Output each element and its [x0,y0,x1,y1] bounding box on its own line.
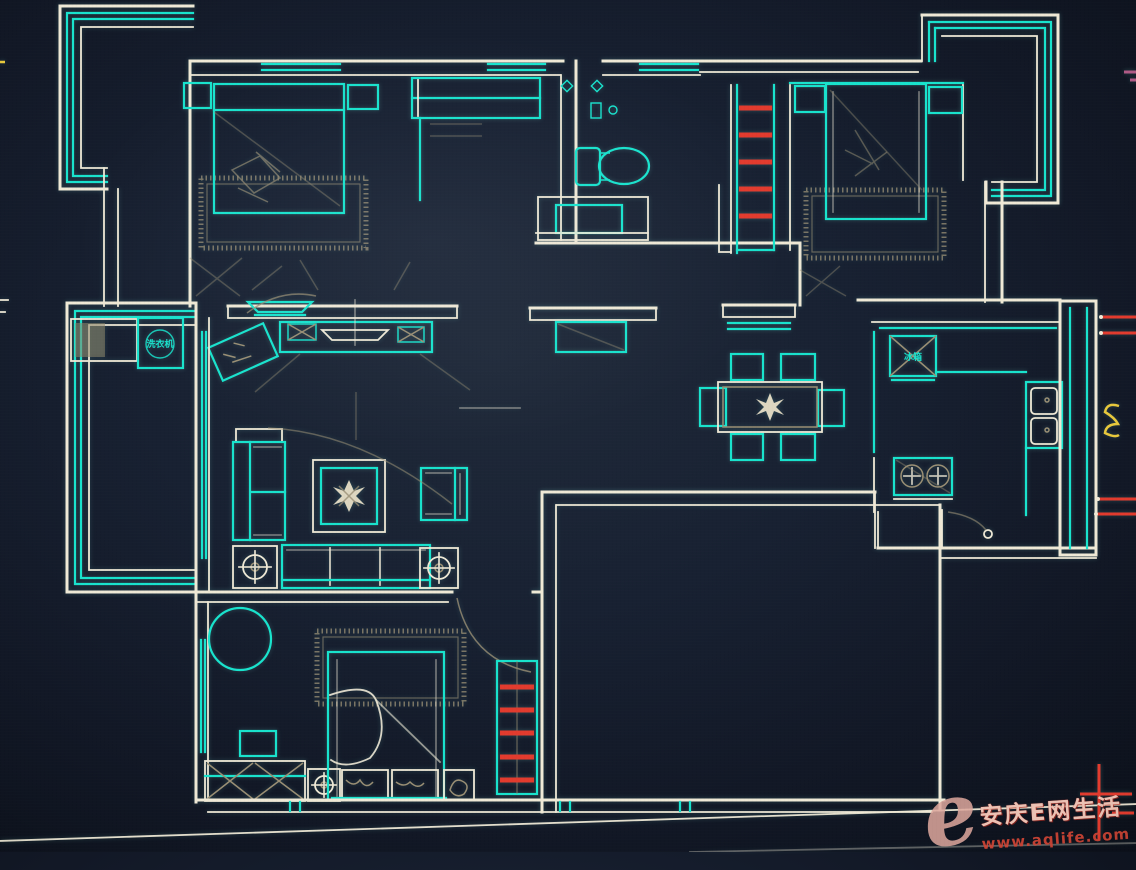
dimension-text-yellow [1105,405,1119,436]
balcony-top-right [922,15,1058,203]
wall-east-upper [985,182,1002,302]
dining-set [700,354,844,460]
chair-symbol [731,354,763,380]
wall-bar-dining [723,305,795,329]
tv-wall [228,260,470,440]
sofa-three-seat-symbol [282,545,430,588]
chair-symbol [781,354,815,380]
side-table-lamp-right [420,548,458,588]
hand-sink-icon [591,103,617,118]
shelf-unit-bottom [497,661,537,794]
sofa-corner-symbol [233,429,285,540]
shoe-cabinet-symbol [208,323,277,380]
dimension-mark-magenta [1124,72,1136,80]
kitchen-door-symbol [942,510,992,548]
bed-symbol [795,84,962,219]
balcony-east [1060,301,1096,555]
chair-symbol [781,434,815,460]
washing-machine-label: 洗衣机 [146,338,173,350]
nightstand-lamp-symbol [308,769,340,801]
wall-bar-hall [530,308,656,352]
toilet-symbol [576,148,649,185]
dining-table-symbol [718,382,822,432]
walls-lower-center [542,492,940,812]
wardrobe-symbol [412,78,540,200]
coffee-table-symbol [313,460,385,532]
bedroom-bottom-left [196,592,542,802]
balcony-top-left [60,6,193,189]
side-table-lamp-left [233,546,277,588]
clipped-mark-left [0,300,8,312]
dimension-cross-red [1080,764,1134,840]
tv-cabinet-symbol [280,322,432,352]
chair-symbol [731,434,763,460]
shelf-unit-top [719,85,774,253]
fridge-label: 冰箱 [904,351,922,363]
bedroom-top-left [184,61,576,296]
dimension-mark-red-upper [1099,315,1136,335]
cad-viewport: 洗衣机 [0,0,1136,852]
photographed-cad-screen: 洗衣机 [0,0,1136,852]
fridge-symbol: 冰箱 [890,336,936,380]
bed-symbol [184,83,378,213]
slipper-box-symbol [444,770,474,800]
kitchen-sink-symbol [1026,382,1062,448]
armchair-symbol [421,468,467,520]
door-hinge-icon [561,80,602,91]
stool-symbol [240,731,276,756]
bedroom-top-right [790,83,963,296]
round-chair-symbol [209,608,271,670]
stove-symbol [894,458,952,499]
dresser-symbol [205,761,305,801]
edge-annotations [0,62,1136,840]
living-room [196,300,520,594]
bed-symbol [328,652,446,800]
dimension-mark-red-lower [1094,497,1136,516]
chair-symbol [700,388,726,426]
